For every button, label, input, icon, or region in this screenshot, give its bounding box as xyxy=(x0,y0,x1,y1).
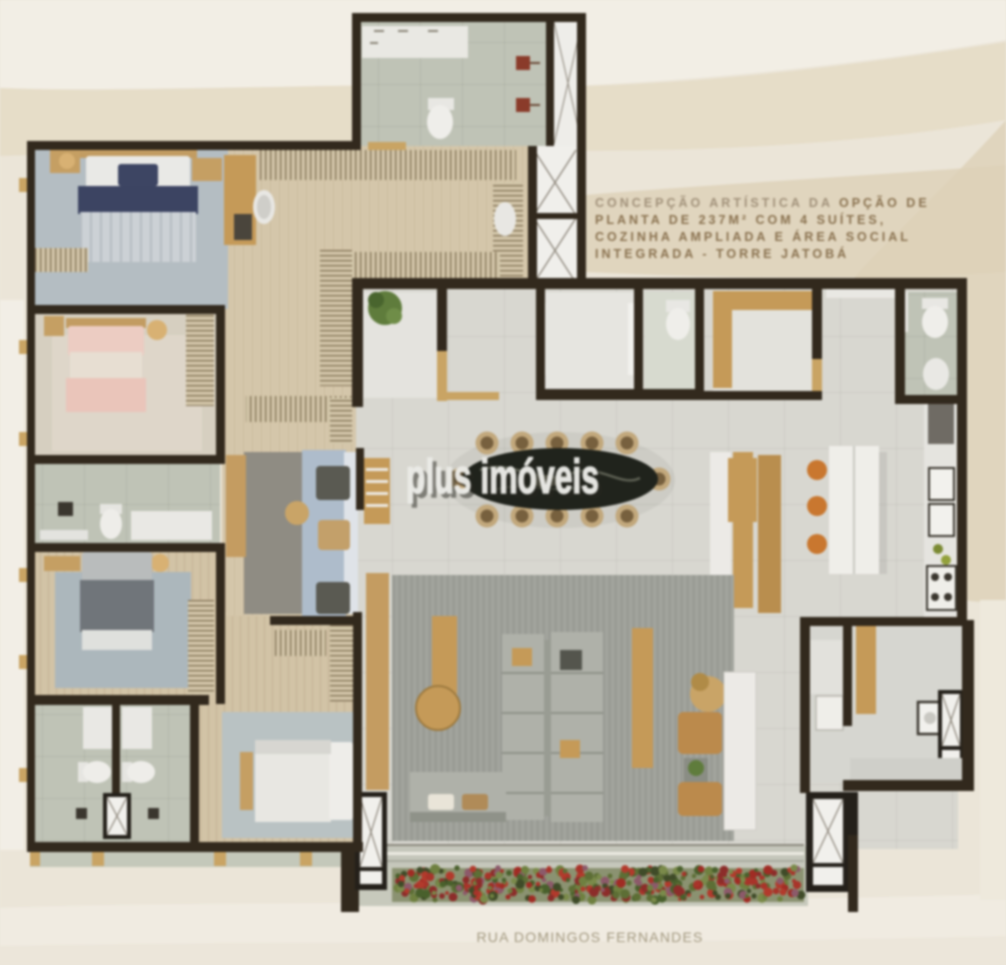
svg-text:COZINHA AMPLIADA E ÁREA SOCIAL: COZINHA AMPLIADA E ÁREA SOCIAL xyxy=(595,229,911,244)
svg-text:RUA DOMINGOS FERNANDES: RUA DOMINGOS FERNANDES xyxy=(476,929,703,945)
svg-text:PLANTA DE 237M² COM 4 SUÍTES,: PLANTA DE 237M² COM 4 SUÍTES, xyxy=(595,212,886,227)
svg-text:plus imóveis: plus imóveis xyxy=(406,451,599,504)
svg-text:INTEGRADA - TORRE JATOBÁ: INTEGRADA - TORRE JATOBÁ xyxy=(595,246,849,261)
svg-text:CONCEPÇÃO ARTÍSTICA DA OPÇÃO D: CONCEPÇÃO ARTÍSTICA DA OPÇÃO DE xyxy=(595,195,930,210)
